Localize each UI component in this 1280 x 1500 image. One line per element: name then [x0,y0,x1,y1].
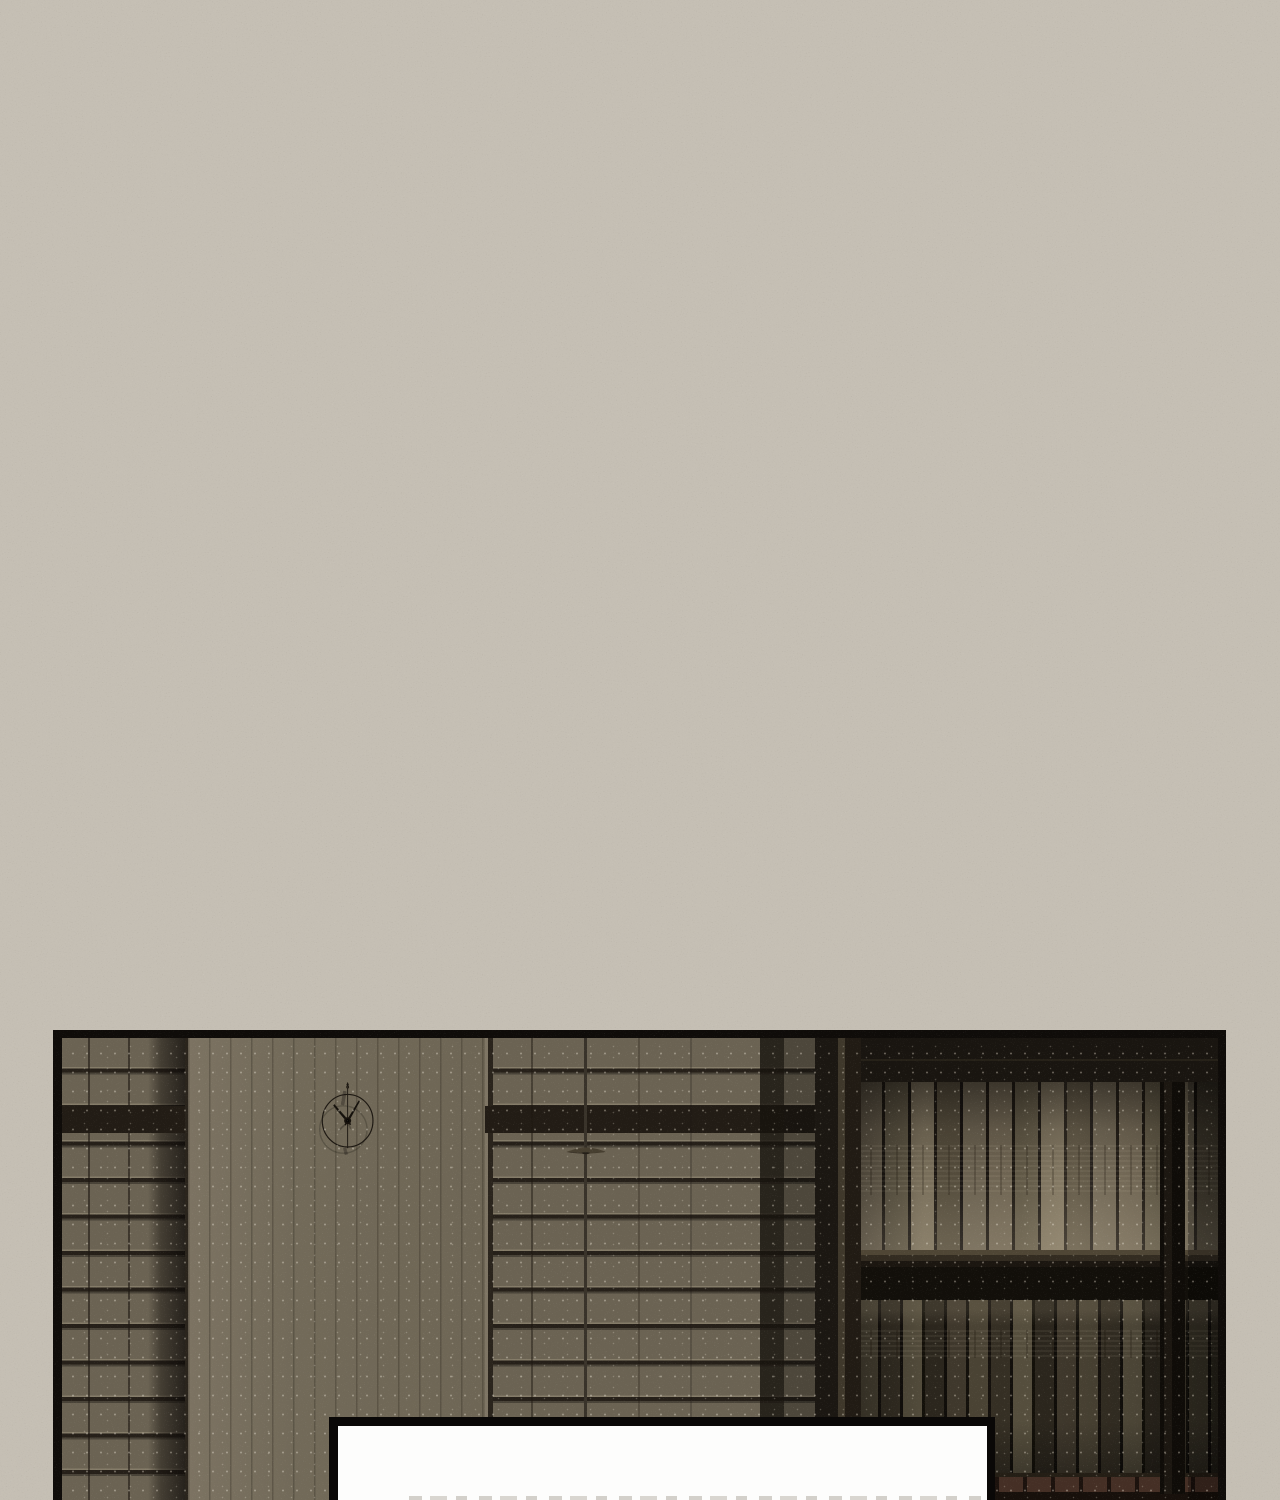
webtoon-page [0,0,1280,1500]
clock-shadow [320,1091,367,1155]
lamp-rod [586,1140,587,1148]
blind-head-rail [62,1106,185,1133]
speech-box-fill [338,1426,987,1500]
lamp-bulb [583,1153,589,1155]
speech-box [329,1417,995,1500]
cut-off-text-marks [409,1496,981,1500]
left-window-blinds [62,1038,185,1500]
clock-mount [346,1082,349,1148]
bookshelf-right-shadow [1188,1082,1218,1500]
bookshelf-edge-highlight [815,1059,1218,1061]
clock-hub [344,1117,351,1125]
bookshelf-top-board [815,1038,1218,1082]
bookshelf-divider-post [1160,1082,1185,1494]
pendant-lamp [400,1140,772,1280]
